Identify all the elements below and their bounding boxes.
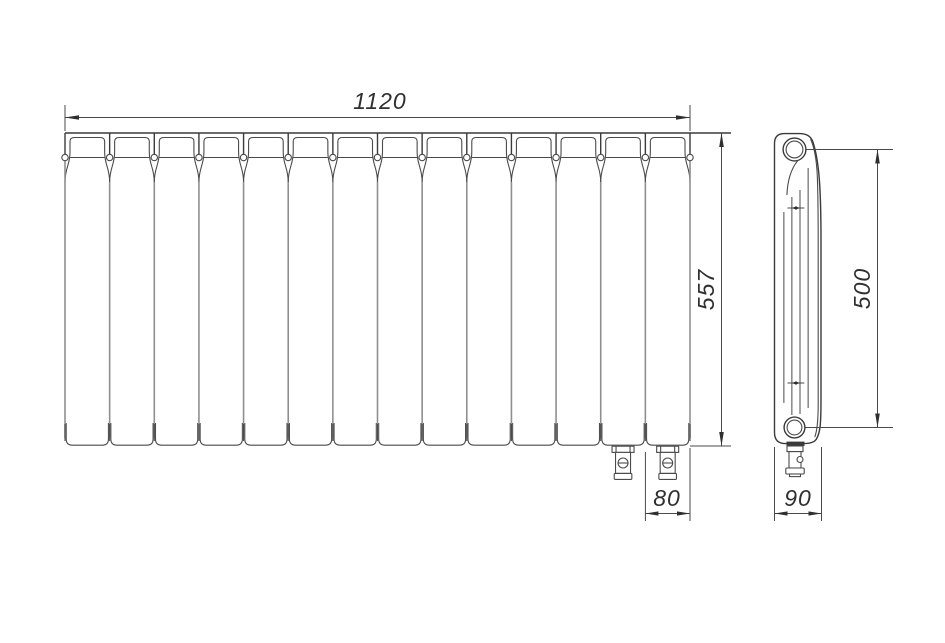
dim-text-axis-distance: 500: [849, 268, 875, 309]
section-nipple: [419, 154, 425, 160]
section-top: [378, 138, 423, 183]
section-top: [288, 138, 333, 183]
side-valve: [786, 446, 804, 477]
section-nipple: [330, 154, 336, 160]
valve-base: [659, 473, 677, 479]
bottom-shadow-band: [787, 442, 805, 446]
arrow-left-icon: [65, 115, 79, 120]
section-nipple: [687, 154, 693, 160]
valve-tip: [790, 474, 801, 477]
section-nipple: [106, 154, 112, 160]
arrow-up-icon: [875, 150, 880, 164]
section-bottom: [423, 423, 465, 445]
section-bottom: [289, 423, 331, 445]
valve-base: [786, 468, 804, 474]
dim-text-section-width: 80: [653, 485, 681, 511]
arrow-left-icon: [645, 511, 658, 515]
section-nipple: [553, 154, 559, 160]
section-bottom: [111, 423, 153, 445]
valve-flange: [612, 446, 634, 452]
arrow-up-icon: [719, 133, 724, 147]
arrow-right-icon: [809, 511, 822, 515]
arrow-left-icon: [775, 511, 788, 515]
section-bottom: [66, 423, 108, 445]
section-top: [154, 138, 199, 183]
bottom-valve: [612, 446, 634, 479]
arrow-down-icon: [875, 414, 880, 428]
section-top: [422, 138, 467, 183]
section-nipple: [508, 154, 514, 160]
arrow-right-icon: [677, 511, 690, 515]
dim-overall-height: 557: [690, 133, 731, 446]
bottom-valve: [657, 446, 679, 479]
valve-port: [797, 457, 803, 463]
drawing-canvas: 1120 557 80 90: [0, 0, 945, 643]
section-bottom: [379, 423, 421, 445]
dim-text-overall-height: 557: [693, 269, 719, 311]
section-bottom: [647, 423, 689, 445]
section-bottom: [557, 423, 599, 445]
section-bottom: [245, 423, 287, 445]
valve-flange: [787, 446, 803, 452]
section-nipple: [196, 154, 202, 160]
dim-axis-distance: 500: [849, 150, 880, 428]
section-top: [199, 138, 244, 183]
valve-base: [614, 473, 632, 479]
section-bottom: [155, 423, 197, 445]
section-nipple: [62, 154, 68, 160]
section-nipple: [642, 154, 648, 160]
section-top: [556, 138, 601, 183]
section-top: [333, 138, 378, 183]
section-top: [511, 138, 556, 183]
dim-overall-width: 1120: [65, 88, 690, 131]
section-nipple: [464, 154, 470, 160]
arrow-right-icon: [676, 115, 690, 120]
section-bottom: [468, 423, 510, 445]
section-bottom: [602, 423, 644, 445]
section-top: [110, 138, 155, 183]
section-top: [645, 138, 690, 183]
section-nipple: [151, 154, 157, 160]
top-collector-hole-inner: [786, 141, 803, 158]
section-top: [244, 138, 289, 183]
front-view: [62, 133, 731, 479]
section-nipple: [285, 154, 291, 160]
valve-flange: [657, 446, 679, 452]
section-nipple: [374, 154, 380, 160]
section-bottom: [513, 423, 555, 445]
dim-text-depth: 90: [784, 485, 812, 511]
bottom-collector-hole-inner: [787, 420, 802, 435]
arrow-down-icon: [719, 432, 724, 446]
side-section-outline: [775, 134, 822, 444]
section-bottom: [200, 423, 242, 445]
section-bottom: [334, 423, 376, 445]
section-nipple: [240, 154, 246, 160]
radiator-dimension-drawing: 1120 557 80 90: [0, 0, 945, 643]
side-view: [775, 134, 894, 477]
section-top: [467, 138, 512, 183]
section-top: [601, 138, 646, 183]
section-top: [65, 138, 110, 183]
section-nipple: [598, 154, 604, 160]
dim-text-overall-width: 1120: [353, 88, 406, 114]
